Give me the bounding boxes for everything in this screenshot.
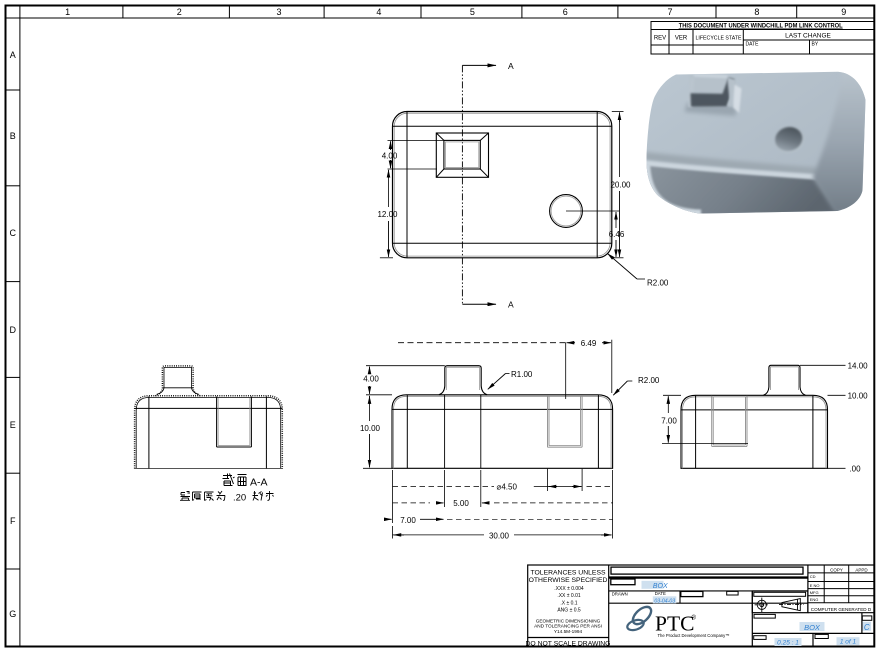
svg-text:ANG ± 0.5: ANG ± 0.5 <box>557 608 581 614</box>
svg-text:8: 8 <box>754 7 759 17</box>
svg-text:A: A <box>508 300 514 310</box>
svg-text:30.00: 30.00 <box>489 531 510 540</box>
svg-text:2: 2 <box>177 7 182 17</box>
svg-text:0.25 : 1: 0.25 : 1 <box>777 640 799 647</box>
svg-text:4: 4 <box>376 7 381 17</box>
svg-text:E NO: E NO <box>810 583 820 588</box>
svg-text:9: 9 <box>841 7 846 17</box>
svg-text:VER: VER <box>675 36 688 42</box>
svg-text:Y14.5M-1994: Y14.5M-1994 <box>554 629 583 634</box>
svg-text:12.00: 12.00 <box>377 210 398 219</box>
svg-text:The Product Development Compan: The Product Development Company™ <box>658 633 730 638</box>
svg-text:MFG: MFG <box>810 590 819 595</box>
svg-text:A: A <box>10 50 16 60</box>
svg-text:⌀4.50: ⌀4.50 <box>497 483 518 492</box>
svg-text:14.00: 14.00 <box>848 362 869 371</box>
svg-text:DO NOT SCALE DRAWING: DO NOT SCALE DRAWING <box>526 640 611 647</box>
svg-text:G: G <box>9 609 16 619</box>
svg-text:R1.00: R1.00 <box>511 370 533 379</box>
svg-text:R2.00: R2.00 <box>647 279 669 288</box>
svg-text:COMPUTER GENERATED D: COMPUTER GENERATED D <box>811 607 872 612</box>
svg-text:CD: CD <box>810 574 816 579</box>
svg-text:5.00: 5.00 <box>453 499 469 508</box>
svg-text:THIS DOCUMENT UNDER WINDCHILL: THIS DOCUMENT UNDER WINDCHILL PDM LINK C… <box>679 23 843 30</box>
svg-text:10.00: 10.00 <box>360 424 381 433</box>
svg-text:BOX: BOX <box>804 623 821 632</box>
svg-text:COPY: COPY <box>830 567 843 572</box>
svg-text:10.00: 10.00 <box>848 391 869 400</box>
svg-text:7: 7 <box>667 7 672 17</box>
svg-text:1 of 1: 1 of 1 <box>840 639 857 646</box>
svg-text:.XXX ± 0.004: .XXX ± 0.004 <box>554 586 584 592</box>
svg-text:R2.00: R2.00 <box>638 376 660 385</box>
svg-text:4.00: 4.00 <box>382 152 398 161</box>
svg-text:6.46: 6.46 <box>609 230 625 239</box>
svg-text:4.00: 4.00 <box>363 374 379 383</box>
svg-text:3: 3 <box>276 7 281 17</box>
svg-text:DATE: DATE <box>655 591 666 596</box>
svg-text:1: 1 <box>65 7 70 17</box>
svg-text:ENG: ENG <box>810 597 819 602</box>
svg-text:.XX ± 0.01: .XX ± 0.01 <box>557 593 581 599</box>
svg-text:LAST CHANGE: LAST CHANGE <box>785 33 831 40</box>
svg-text:®: ® <box>692 615 697 622</box>
svg-text:TOLERANCES UNLESS: TOLERANCES UNLESS <box>530 570 606 577</box>
svg-text:A-A: A-A <box>250 477 268 489</box>
svg-text:6.49: 6.49 <box>581 339 597 348</box>
svg-text:7.00: 7.00 <box>661 417 677 426</box>
svg-text:6: 6 <box>563 7 568 17</box>
svg-text:C: C <box>9 228 16 238</box>
svg-text:7.00: 7.00 <box>400 516 416 525</box>
svg-text:E: E <box>10 420 16 430</box>
svg-text:A: A <box>508 61 514 71</box>
svg-text:OTHERWISE SPECIFIED: OTHERWISE SPECIFIED <box>529 577 608 584</box>
svg-text:REV: REV <box>654 36 666 42</box>
svg-text:C: C <box>864 623 870 632</box>
svg-text:20.00: 20.00 <box>610 181 631 190</box>
svg-text:BOX: BOX <box>653 583 668 590</box>
svg-text:5: 5 <box>470 7 475 17</box>
svg-text:DRAWN: DRAWN <box>612 591 628 596</box>
svg-text:B: B <box>10 131 16 141</box>
svg-text:.X ± 0.1: .X ± 0.1 <box>560 601 577 607</box>
svg-text:BY: BY <box>812 42 819 48</box>
svg-text:APPD: APPD <box>855 567 868 572</box>
svg-text:LIFECYCLE STATE: LIFECYCLE STATE <box>696 36 742 42</box>
svg-text:D: D <box>9 325 16 335</box>
svg-text:03-04-03: 03-04-03 <box>654 599 675 605</box>
svg-text:DATE: DATE <box>746 42 760 48</box>
svg-text:F: F <box>10 516 16 526</box>
svg-text:.20: .20 <box>233 493 246 504</box>
svg-text:.00: .00 <box>849 464 861 473</box>
